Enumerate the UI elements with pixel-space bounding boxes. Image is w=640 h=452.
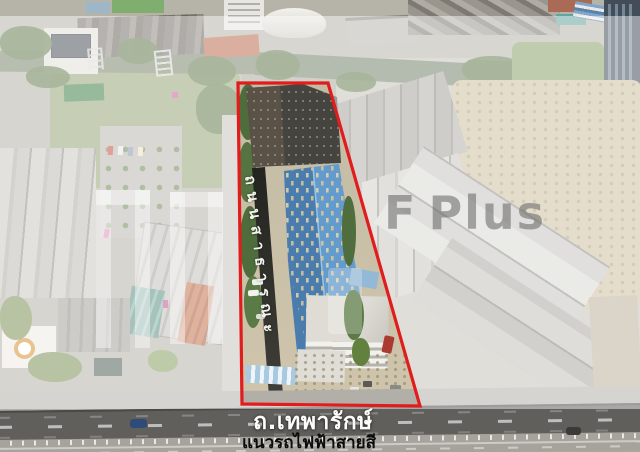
watermark-text: F Plus (384, 190, 546, 236)
side-street (222, 115, 240, 400)
highrise-windows (608, 4, 636, 90)
white-building-top (224, 0, 264, 30)
watermark-logo-fragment (96, 190, 111, 348)
window-rows (228, 3, 260, 27)
dark-warehouse-roof (246, 84, 341, 167)
dark-car-on-road (566, 427, 581, 435)
dark-warehouse-roof-left (246, 86, 285, 167)
pink-marker (172, 92, 178, 98)
footbridge (87, 47, 104, 70)
parked-car (128, 147, 134, 156)
transit-line-label: แนวรถไฟฟ้าสายสีเหลือง (228, 429, 390, 452)
solar-panels (51, 34, 91, 58)
parked-car (118, 146, 124, 155)
gas-station-logo (14, 338, 35, 359)
pink-marker (163, 300, 168, 308)
watermark-logo-fragment (170, 192, 185, 344)
watermark-logo-fragment (170, 192, 223, 207)
watermark-logo-fragment (135, 190, 150, 348)
warehouses-left (0, 148, 96, 298)
property-trees-east (342, 196, 356, 266)
trees (256, 50, 300, 80)
public-road-label: ถนนสาธารณะ (238, 174, 282, 340)
blue-fence-row (246, 365, 297, 386)
watermark-logo-fragment (328, 268, 362, 334)
trees (148, 350, 178, 372)
trees (0, 26, 52, 60)
watermark-logo-fragment (96, 190, 150, 205)
trees (0, 296, 32, 340)
blue-car-on-road (130, 419, 147, 428)
trees (188, 56, 236, 86)
watermark-plus: Plus (428, 190, 546, 236)
parked-car (108, 146, 114, 155)
footbridge (154, 49, 174, 77)
roof-vent-dots (246, 84, 342, 168)
sheds-bottom-left (58, 298, 130, 352)
trees (28, 352, 82, 382)
parked-car (138, 147, 144, 156)
dark-shed (94, 358, 122, 376)
trees (336, 72, 376, 92)
dome-building (262, 8, 326, 38)
blue-roof-top (86, 2, 110, 13)
watermark-partial-letter: F (384, 190, 417, 236)
trees (118, 38, 158, 64)
watermark-logo-fragment (208, 192, 223, 344)
green-metal-roof (64, 83, 105, 101)
property-trees-east (352, 338, 370, 366)
village-top-right (408, 0, 560, 35)
green-roof-top (112, 0, 164, 13)
aerial-photo: F Plus ถนนสาธารณะ ถ.เทพารักษ์ แนวรถไฟฟ้า… (0, 0, 640, 452)
vehicle (363, 381, 372, 387)
